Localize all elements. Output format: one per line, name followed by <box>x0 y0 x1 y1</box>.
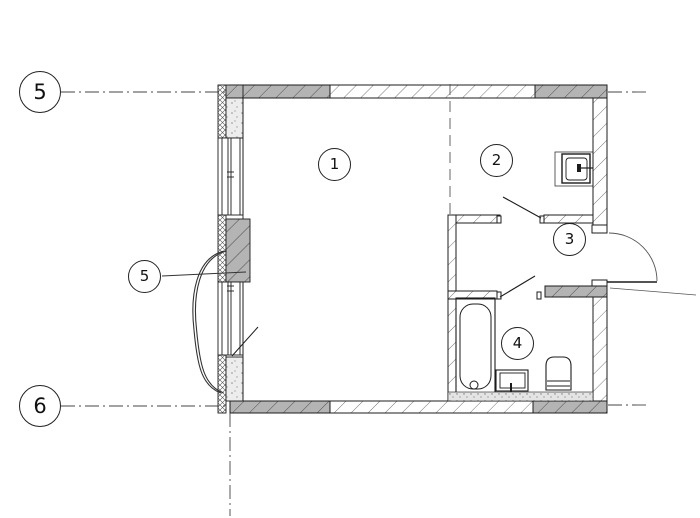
bathroom-floor-strip <box>448 392 593 401</box>
kitchen-sink-icon <box>555 152 593 186</box>
bathroom-door-leaf-icon <box>500 276 535 297</box>
axis-marker-6-label: 6 <box>33 396 46 417</box>
room-door-leaf-icon <box>503 197 541 218</box>
washbasin-icon <box>496 370 528 394</box>
room-label-3-text: 3 <box>565 232 575 247</box>
floor-plan-drawing <box>0 0 700 518</box>
grid-lines <box>61 84 648 516</box>
room-label-4-text: 4 <box>513 336 523 351</box>
room-label-4: 4 <box>501 327 534 360</box>
left-facade-wall <box>218 85 250 413</box>
balcony-unit-label-5-text: 5 <box>140 269 150 284</box>
room-label-1: 1 <box>318 148 351 181</box>
exterior-walls <box>230 85 607 413</box>
axis-marker-6: 6 <box>19 385 61 427</box>
window-lower-balcony-door <box>218 282 243 355</box>
bathtub-icon <box>456 298 495 393</box>
axis-marker-5-label: 5 <box>33 82 46 103</box>
entrance-door-icon <box>607 233 657 282</box>
toilet-icon <box>546 357 571 390</box>
axis-marker-5: 5 <box>19 71 61 113</box>
room-label-2: 2 <box>480 144 513 177</box>
entrance-landing-line <box>610 288 696 295</box>
doors <box>193 197 696 393</box>
balcony-unit-label-5: 5 <box>128 260 161 293</box>
room-label-1-text: 1 <box>330 157 340 172</box>
room-label-2-text: 2 <box>492 153 502 168</box>
fixtures <box>448 152 593 401</box>
room-label-3: 3 <box>553 223 586 256</box>
window-upper <box>218 138 243 215</box>
floor-plan-canvas: 5 6 1 2 3 4 5 <box>0 0 700 518</box>
